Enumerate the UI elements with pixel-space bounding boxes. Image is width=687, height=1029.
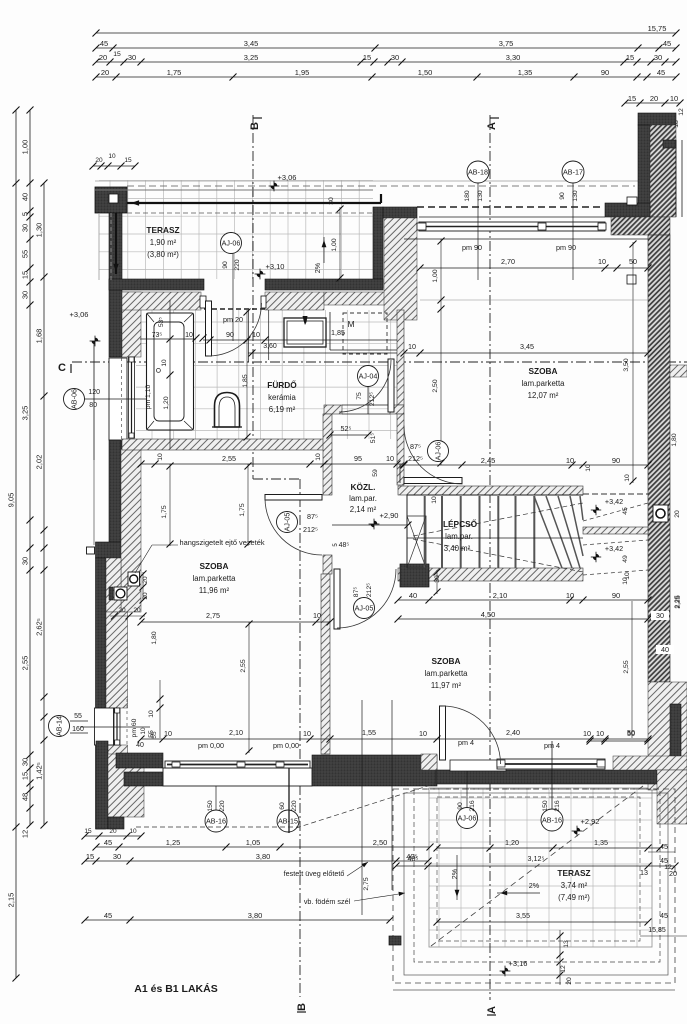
svg-text:AJ-06: AJ-06: [222, 239, 241, 248]
svg-text:3,50: 3,50: [623, 358, 630, 371]
svg-text:+3,16: +3,16: [509, 959, 528, 968]
svg-text:48: 48: [21, 793, 30, 801]
svg-text:30: 30: [656, 611, 664, 620]
svg-text:10: 10: [157, 453, 164, 461]
svg-text:10: 10: [129, 828, 137, 835]
svg-text:TERASZ: TERASZ: [146, 225, 179, 235]
svg-text:20: 20: [101, 68, 109, 77]
svg-text:2,55: 2,55: [222, 454, 236, 463]
svg-text:10: 10: [408, 342, 416, 351]
svg-text:15: 15: [628, 94, 636, 103]
svg-text:50: 50: [627, 729, 635, 738]
svg-text:55: 55: [151, 731, 158, 739]
svg-text:+3,06: +3,06: [70, 310, 89, 319]
svg-text:1,68: 1,68: [35, 329, 44, 344]
svg-text:90: 90: [559, 192, 566, 200]
svg-text:20: 20: [650, 94, 658, 103]
svg-text:A: A: [486, 122, 498, 130]
svg-text:1,85: 1,85: [331, 328, 345, 337]
svg-text:45: 45: [657, 68, 665, 77]
svg-text:80: 80: [89, 402, 97, 409]
svg-text:87⁵: 87⁵: [307, 512, 318, 521]
svg-text:1,05: 1,05: [246, 838, 261, 847]
svg-text:1,35: 1,35: [518, 68, 533, 77]
svg-text:40: 40: [136, 742, 144, 749]
svg-text:3,55: 3,55: [516, 911, 530, 920]
svg-text:2,62⁵: 2,62⁵: [35, 618, 44, 636]
svg-text:212⁵: 212⁵: [366, 583, 373, 597]
svg-text:AJ-05: AJ-05: [355, 604, 374, 613]
svg-text:45: 45: [660, 911, 668, 920]
svg-text:3,75: 3,75: [499, 39, 514, 48]
svg-text:1,20: 1,20: [505, 838, 519, 847]
svg-text:12: 12: [21, 830, 30, 838]
svg-text:2%: 2%: [450, 868, 459, 879]
svg-text:11,96 m²: 11,96 m²: [199, 586, 230, 595]
svg-text:30: 30: [113, 852, 121, 861]
svg-text:1,00: 1,00: [331, 238, 338, 251]
svg-text:3,25: 3,25: [244, 53, 259, 62]
svg-text:pm 90: pm 90: [556, 243, 576, 252]
svg-text:10: 10: [624, 474, 631, 482]
svg-text:+3,42: +3,42: [605, 497, 623, 506]
svg-text:87⁵: 87⁵: [410, 442, 421, 451]
svg-text:B: B: [296, 1003, 308, 1011]
svg-text:10: 10: [670, 94, 678, 103]
svg-text:2%: 2%: [529, 881, 540, 890]
svg-text:30: 30: [21, 224, 30, 232]
svg-text:1,25: 1,25: [166, 838, 181, 847]
svg-text:1,55: 1,55: [362, 728, 376, 737]
svg-text:M: M: [347, 319, 354, 329]
svg-text:2,70: 2,70: [501, 257, 515, 266]
svg-text:pm 0,00: pm 0,00: [198, 741, 224, 750]
svg-text:(7,49 m²): (7,49 m²): [558, 893, 590, 902]
svg-text:10: 10: [431, 496, 438, 504]
svg-text:220: 220: [219, 800, 226, 812]
svg-text:AJ-04: AJ-04: [359, 372, 378, 381]
svg-text:2,50: 2,50: [432, 379, 439, 392]
svg-text:150: 150: [207, 800, 214, 812]
svg-text:12,07 m²: 12,07 m²: [528, 391, 559, 400]
svg-text:lam.par.: lam.par.: [349, 494, 377, 503]
svg-text:45: 45: [622, 507, 629, 515]
svg-text:3,40 m²: 3,40 m²: [444, 544, 471, 553]
svg-text:130: 130: [477, 190, 484, 202]
svg-text:3,25: 3,25: [21, 406, 30, 421]
svg-text:+3,42: +3,42: [605, 544, 623, 553]
svg-text:3,74 m²: 3,74 m²: [561, 881, 588, 890]
svg-text:10: 10: [303, 729, 311, 738]
svg-text:2,55: 2,55: [240, 659, 247, 672]
svg-text:pm 4: pm 4: [458, 738, 474, 747]
svg-text:AB-17: AB-17: [563, 168, 583, 177]
svg-text:1,95: 1,95: [295, 68, 310, 77]
svg-text:2,55: 2,55: [21, 656, 30, 671]
svg-text:13: 13: [640, 868, 648, 877]
svg-text:59: 59: [372, 469, 379, 477]
svg-text:45: 45: [104, 911, 112, 920]
svg-text:1,75: 1,75: [239, 503, 246, 516]
svg-text:40: 40: [409, 591, 417, 600]
svg-text:180: 180: [464, 190, 471, 202]
svg-text:2,55: 2,55: [623, 660, 630, 673]
svg-text:AB-15: AB-15: [278, 817, 298, 826]
svg-text:2,45: 2,45: [481, 456, 496, 465]
svg-text:pm 0,00: pm 0,00: [273, 741, 299, 750]
svg-text:AJ-06: AJ-06: [434, 442, 443, 461]
svg-text:30: 30: [434, 575, 441, 583]
svg-text:40: 40: [21, 193, 30, 201]
svg-text:90: 90: [612, 456, 620, 465]
svg-text:150: 150: [542, 800, 549, 812]
svg-text:1,75: 1,75: [161, 505, 168, 518]
svg-text:pm 20: pm 20: [223, 315, 243, 324]
svg-text:45: 45: [663, 39, 671, 48]
svg-text:53⁵: 53⁵: [158, 317, 165, 327]
svg-text:15: 15: [113, 51, 121, 58]
svg-text:20: 20: [95, 157, 103, 164]
svg-text:AB-16: AB-16: [542, 816, 562, 825]
svg-text:90: 90: [222, 261, 229, 269]
svg-text:3,12⁵: 3,12⁵: [528, 854, 545, 863]
svg-text:1,75: 1,75: [167, 68, 182, 77]
svg-text:+2,92: +2,92: [581, 817, 600, 826]
svg-text:30: 30: [328, 197, 335, 205]
svg-text:pm 1,10: pm 1,10: [145, 385, 152, 410]
svg-text:1,80: 1,80: [671, 433, 678, 446]
svg-text:2,10: 2,10: [493, 591, 508, 600]
svg-text:C: C: [58, 362, 66, 374]
svg-text:2,50: 2,50: [373, 838, 388, 847]
svg-text:AB-16: AB-16: [206, 817, 226, 826]
svg-text:10: 10: [585, 464, 592, 472]
svg-text:festett üveg előtető: festett üveg előtető: [284, 869, 345, 878]
svg-text:SZOBA: SZOBA: [199, 561, 228, 571]
svg-text:3,80: 3,80: [256, 852, 271, 861]
svg-text:1,90 m²: 1,90 m²: [150, 238, 177, 247]
svg-text:30: 30: [21, 758, 30, 766]
svg-text:1,50: 1,50: [418, 68, 433, 77]
svg-text:20: 20: [99, 53, 107, 62]
svg-text:40⁵: 40⁵: [408, 854, 419, 863]
svg-text:220: 220: [291, 800, 298, 812]
svg-text:2%: 2%: [313, 262, 322, 273]
svg-text:(3,80 m²): (3,80 m²): [147, 250, 179, 259]
svg-text:+3,06: +3,06: [278, 173, 297, 182]
svg-text:15: 15: [626, 53, 634, 62]
svg-text:10: 10: [596, 729, 604, 738]
svg-text:kerámia: kerámia: [268, 393, 296, 402]
svg-text:2,25: 2,25: [675, 595, 682, 608]
svg-text:45: 45: [104, 838, 112, 847]
svg-text:10: 10: [566, 591, 574, 600]
svg-text:55: 55: [21, 250, 30, 258]
svg-text:2,40: 2,40: [506, 728, 520, 737]
svg-text:15: 15: [124, 157, 132, 164]
svg-text:A1 és B1 LAKÁS: A1 és B1 LAKÁS: [134, 982, 217, 995]
svg-text:SZOBA: SZOBA: [528, 366, 557, 376]
svg-text:220: 220: [234, 259, 241, 271]
svg-text:60: 60: [279, 802, 286, 810]
svg-text:10: 10: [315, 453, 322, 461]
svg-text:49: 49: [622, 555, 629, 563]
svg-text:1,35: 1,35: [594, 838, 608, 847]
svg-text:15: 15: [86, 852, 94, 861]
svg-text:30: 30: [21, 291, 30, 299]
svg-text:73⁵: 73⁵: [152, 332, 163, 339]
svg-text:48⁵: 48⁵: [339, 542, 350, 549]
svg-text:SZOBA: SZOBA: [431, 656, 460, 666]
svg-text:1,00: 1,00: [432, 269, 439, 282]
svg-text:15: 15: [363, 53, 371, 62]
svg-text:95: 95: [354, 454, 362, 463]
svg-text:2,10: 2,10: [229, 728, 243, 737]
svg-text:12: 12: [664, 864, 672, 871]
svg-text:FÜRDŐ: FÜRDŐ: [267, 379, 297, 390]
svg-text:12: 12: [678, 108, 685, 116]
svg-text:3,80: 3,80: [248, 911, 263, 920]
svg-text:30: 30: [128, 53, 136, 62]
svg-text:KÖZL.: KÖZL.: [351, 482, 376, 492]
svg-text:90: 90: [612, 591, 620, 600]
svg-text:10: 10: [313, 611, 321, 620]
svg-text:130: 130: [572, 190, 579, 202]
svg-text:87⁵: 87⁵: [353, 587, 360, 598]
svg-text:30: 30: [654, 53, 662, 62]
svg-text:1,85: 1,85: [242, 374, 249, 387]
svg-text:A: A: [486, 1006, 498, 1014]
svg-text:1,42⁵: 1,42⁵: [35, 762, 44, 780]
svg-text:51⁵: 51⁵: [370, 433, 377, 444]
svg-text:3,45: 3,45: [244, 39, 259, 48]
svg-text:lam.parketta: lam.parketta: [193, 574, 237, 583]
svg-text:212⁵: 212⁵: [303, 525, 318, 534]
svg-text:AJ-06: AJ-06: [458, 814, 477, 823]
svg-text:216: 216: [469, 800, 476, 812]
svg-text:B: B: [249, 122, 261, 130]
svg-text:AB-18: AB-18: [468, 168, 488, 177]
svg-text:212⁵: 212⁵: [369, 392, 376, 406]
svg-text:30: 30: [391, 53, 399, 62]
svg-text:1,00: 1,00: [21, 140, 30, 155]
svg-text:10: 10: [148, 710, 155, 718]
svg-text:lam.par.: lam.par.: [445, 532, 473, 541]
svg-text:90: 90: [457, 802, 464, 810]
svg-text:10: 10: [622, 577, 629, 585]
svg-text:20: 20: [133, 607, 141, 614]
svg-text:3,60: 3,60: [263, 343, 277, 350]
svg-text:lam.parketta: lam.parketta: [425, 669, 469, 678]
svg-text:AB-06: AB-06: [70, 389, 79, 409]
svg-text:20: 20: [674, 510, 681, 518]
svg-text:pm 90: pm 90: [462, 243, 482, 252]
svg-text:LÉPCSŐ: LÉPCSŐ: [443, 518, 478, 529]
svg-text:hangszigetelt ejtő vezeték: hangszigetelt ejtő vezeték: [179, 538, 264, 547]
svg-text:52⁵: 52⁵: [341, 424, 352, 433]
svg-text:13: 13: [563, 940, 570, 948]
svg-text:TERASZ: TERASZ: [557, 868, 590, 878]
svg-text:+2,90: +2,90: [380, 511, 399, 520]
svg-text:10: 10: [252, 330, 260, 339]
svg-text:10: 10: [419, 729, 427, 738]
svg-text:10: 10: [598, 257, 606, 266]
svg-text:45: 45: [100, 39, 108, 48]
svg-text:55: 55: [74, 713, 82, 720]
svg-text:15: 15: [21, 271, 30, 279]
svg-text:15: 15: [84, 828, 92, 835]
svg-text:20: 20: [109, 828, 117, 835]
svg-text:4,50: 4,50: [481, 610, 496, 619]
svg-text:75: 75: [356, 392, 363, 400]
svg-text:10: 10: [161, 359, 168, 367]
svg-text:5: 5: [21, 212, 30, 216]
svg-text:2,14 m²: 2,14 m²: [350, 505, 377, 514]
svg-text:3,30: 3,30: [506, 53, 521, 62]
svg-text:90: 90: [601, 68, 609, 77]
svg-text:20: 20: [118, 607, 126, 614]
svg-text:3,45: 3,45: [520, 342, 534, 351]
svg-text:2,75: 2,75: [206, 611, 220, 620]
svg-text:30: 30: [21, 557, 30, 565]
svg-text:10: 10: [583, 729, 591, 738]
svg-text:10: 10: [164, 729, 172, 738]
svg-text:212⁵: 212⁵: [408, 454, 423, 463]
svg-text:AJ-05: AJ-05: [283, 513, 292, 532]
svg-text:10: 10: [108, 153, 116, 160]
svg-text:lam.parketta: lam.parketta: [522, 379, 566, 388]
svg-text:9,05: 9,05: [7, 493, 16, 508]
svg-text:vb. födém szél: vb. födém szél: [304, 897, 351, 906]
svg-text:40: 40: [661, 645, 669, 654]
svg-text:2,15: 2,15: [7, 893, 16, 908]
svg-text:15,85: 15,85: [648, 927, 666, 934]
svg-text:15: 15: [21, 772, 30, 780]
svg-text:90: 90: [226, 330, 234, 339]
svg-text:1,20: 1,20: [163, 396, 170, 409]
svg-text:+3,10: +3,10: [266, 262, 285, 271]
svg-text:10: 10: [386, 454, 394, 463]
svg-text:11,97 m²: 11,97 m²: [431, 681, 462, 690]
svg-text:2,75: 2,75: [363, 877, 370, 890]
svg-text:1,30: 1,30: [35, 223, 44, 238]
svg-text:AB-14: AB-14: [55, 716, 64, 736]
svg-text:15,75: 15,75: [648, 24, 667, 33]
svg-text:45: 45: [660, 842, 668, 851]
svg-text:10: 10: [185, 332, 193, 339]
svg-text:6,19 m²: 6,19 m²: [269, 405, 296, 414]
svg-text:216: 216: [554, 800, 561, 812]
svg-text:50: 50: [629, 257, 637, 266]
svg-text:1,80: 1,80: [151, 631, 158, 644]
svg-text:10: 10: [566, 456, 574, 465]
svg-text:20: 20: [566, 977, 573, 985]
svg-text:2,02: 2,02: [35, 455, 44, 470]
svg-text:pm 60: pm 60: [131, 718, 138, 737]
svg-text:10: 10: [140, 727, 147, 735]
